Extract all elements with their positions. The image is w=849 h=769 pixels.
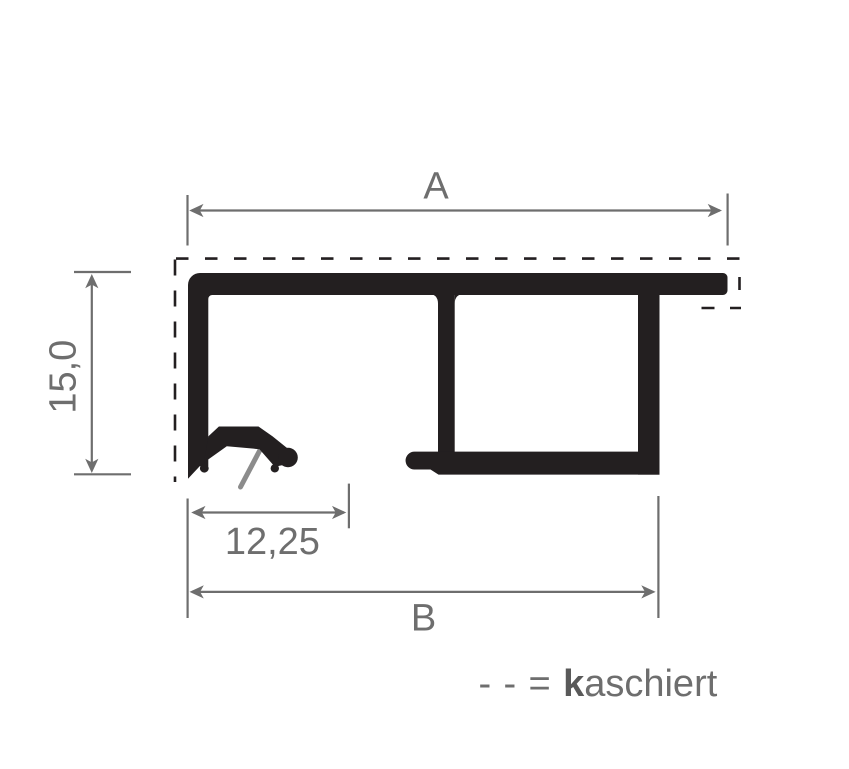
svg-text:15,0: 15,0 bbox=[42, 340, 84, 414]
svg-text:A: A bbox=[423, 166, 449, 208]
svg-text:12,25: 12,25 bbox=[225, 521, 320, 563]
svg-text:B: B bbox=[411, 598, 436, 640]
svg-text:- - = kaschiert: - - = kaschiert bbox=[479, 663, 718, 705]
